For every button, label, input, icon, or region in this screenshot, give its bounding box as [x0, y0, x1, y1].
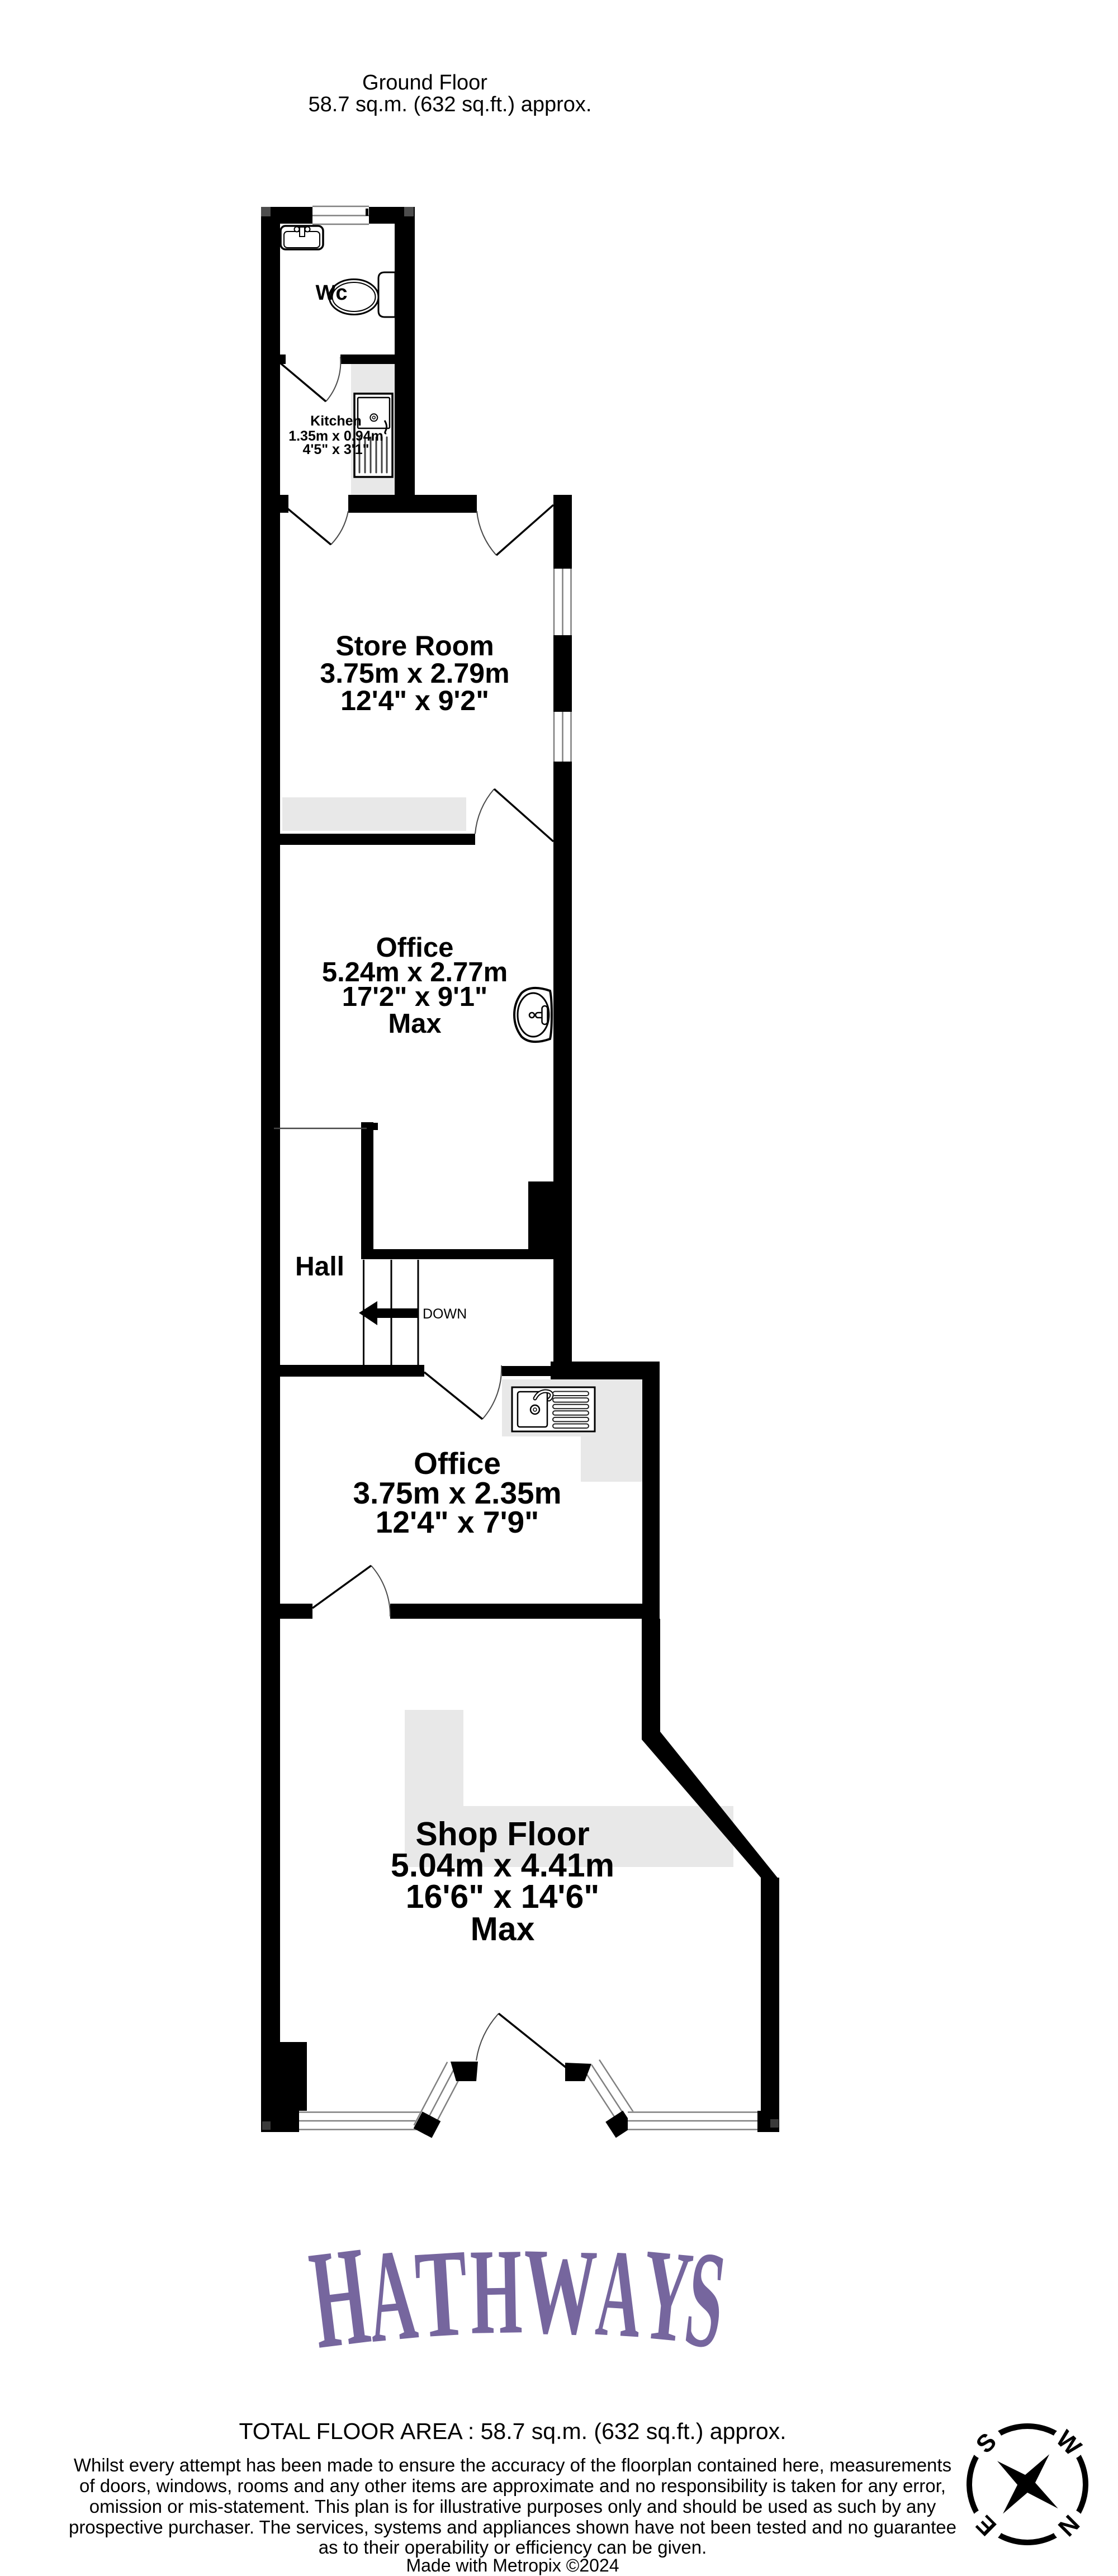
svg-text:T: T [412, 2223, 472, 2365]
svg-text:TOTAL FLOOR AREA : 58.7 sq.m.: TOTAL FLOOR AREA : 58.7 sq.m. (632 sq.ft… [239, 2418, 786, 2444]
svg-text:16'6" x 14'6": 16'6" x 14'6" [406, 1878, 599, 1915]
svg-text:Max: Max [471, 1911, 535, 1948]
svg-text:W: W [522, 2223, 599, 2361]
svg-text:of doors, windows, rooms and a: of doors, windows, rooms and any other i… [79, 2475, 946, 2496]
svg-text:as to their operability or eff: as to their operability or efficiency ca… [319, 2537, 707, 2558]
svg-text:Max: Max [388, 1009, 441, 1039]
svg-text:12'4" x 7'9": 12'4" x 7'9" [376, 1505, 539, 1539]
svg-text:3.75m x 2.79m: 3.75m x 2.79m [320, 658, 509, 689]
svg-text:17'2" x 9'1": 17'2" x 9'1" [342, 982, 488, 1012]
svg-text:12'4" x 9'2": 12'4" x 9'2" [340, 685, 489, 716]
svg-text:Kitchen: Kitchen [310, 413, 362, 429]
svg-text:Hall: Hall [295, 1252, 344, 1282]
svg-text:58.7 sq.m. (632 sq.ft.) approx: 58.7 sq.m. (632 sq.ft.) approx. [309, 93, 592, 116]
svg-text:prospective purchaser. The ser: prospective purchaser. The services, sys… [69, 2517, 956, 2537]
svg-text:4'5" x 3'1": 4'5" x 3'1" [302, 442, 369, 457]
svg-text:Ground Floor: Ground Floor [362, 71, 487, 94]
svg-text:H: H [469, 2223, 523, 2360]
svg-text:omission or mis-statement. Thi: omission or mis-statement. This plan is … [89, 2496, 936, 2517]
svg-text:Whilst every attempt has been: Whilst every attempt has been made to en… [74, 2455, 951, 2475]
svg-text:Wc: Wc [316, 281, 348, 305]
svg-text:Store Room: Store Room [335, 630, 494, 661]
svg-text:DOWN: DOWN [423, 1306, 467, 1322]
svg-text:Made with Metropix ©2024: Made with Metropix ©2024 [406, 2555, 619, 2575]
